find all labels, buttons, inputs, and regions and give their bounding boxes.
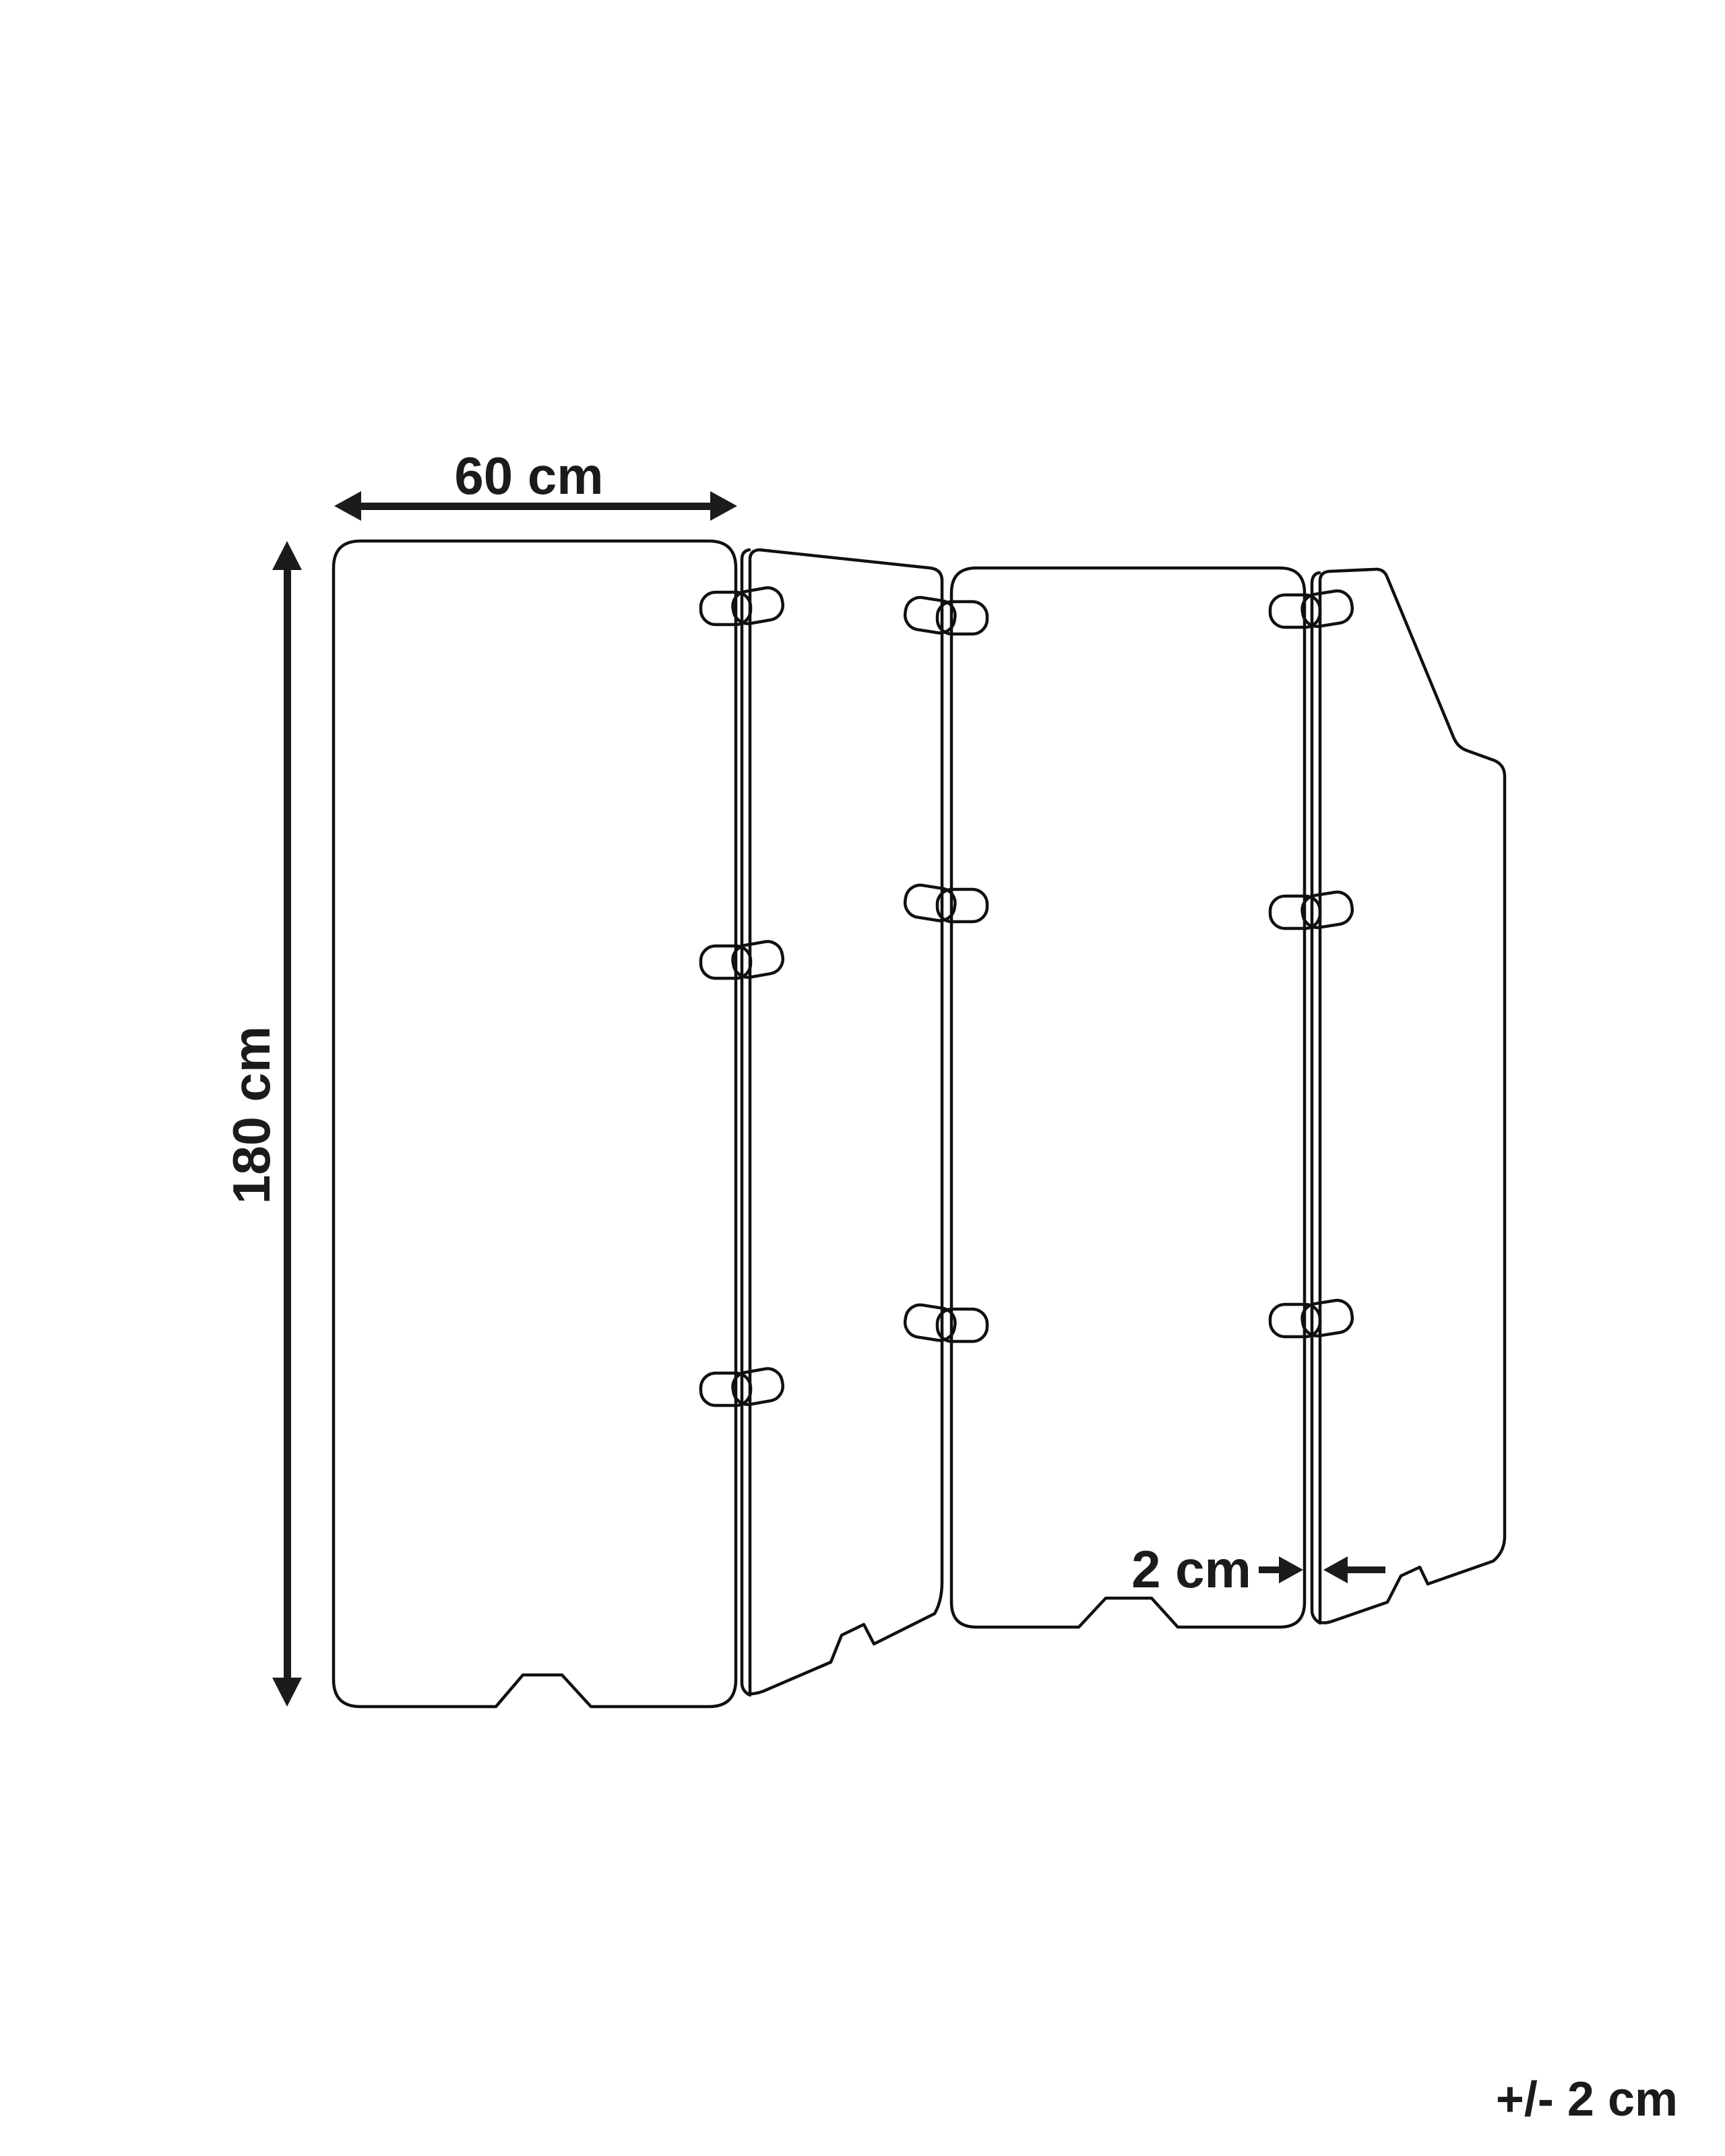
panel-1	[334, 541, 736, 1707]
arrowhead-up-icon	[272, 541, 302, 570]
panel-4	[1320, 569, 1505, 1623]
arrowhead-left-icon	[334, 491, 361, 521]
dimension-diagram-page: 60 cm 180 cm 2 cm +/- 2 cm	[0, 0, 1725, 2156]
width-label: 60 cm	[454, 446, 603, 505]
thickness-label: 2 cm	[1131, 1540, 1251, 1599]
panel-2	[750, 550, 942, 1694]
tolerance-label: +/- 2 cm	[1496, 2072, 1678, 2126]
panel-3	[951, 568, 1305, 1627]
divider-panels	[334, 541, 1505, 1707]
arrowhead-right-icon	[710, 491, 737, 521]
arrowhead-down-icon	[272, 1678, 302, 1707]
height-label: 180 cm	[222, 1026, 281, 1205]
room-divider-dimension-diagram: 60 cm 180 cm 2 cm +/- 2 cm	[0, 0, 1725, 2156]
